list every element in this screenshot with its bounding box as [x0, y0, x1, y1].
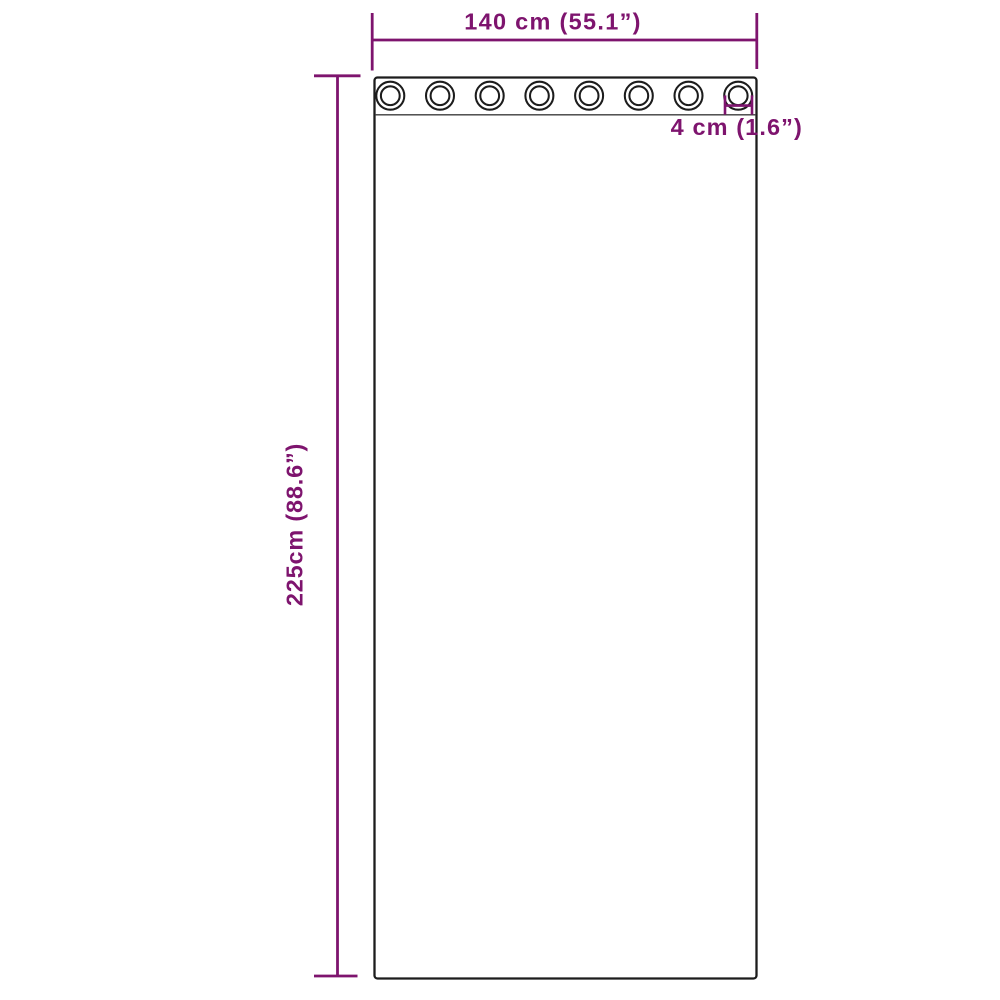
svg-text:140 cm (55.1”): 140 cm (55.1”)	[464, 9, 642, 35]
svg-text:4 cm (1.6”): 4 cm (1.6”)	[671, 114, 803, 140]
svg-text:225cm (88.6”): 225cm (88.6”)	[282, 443, 308, 606]
